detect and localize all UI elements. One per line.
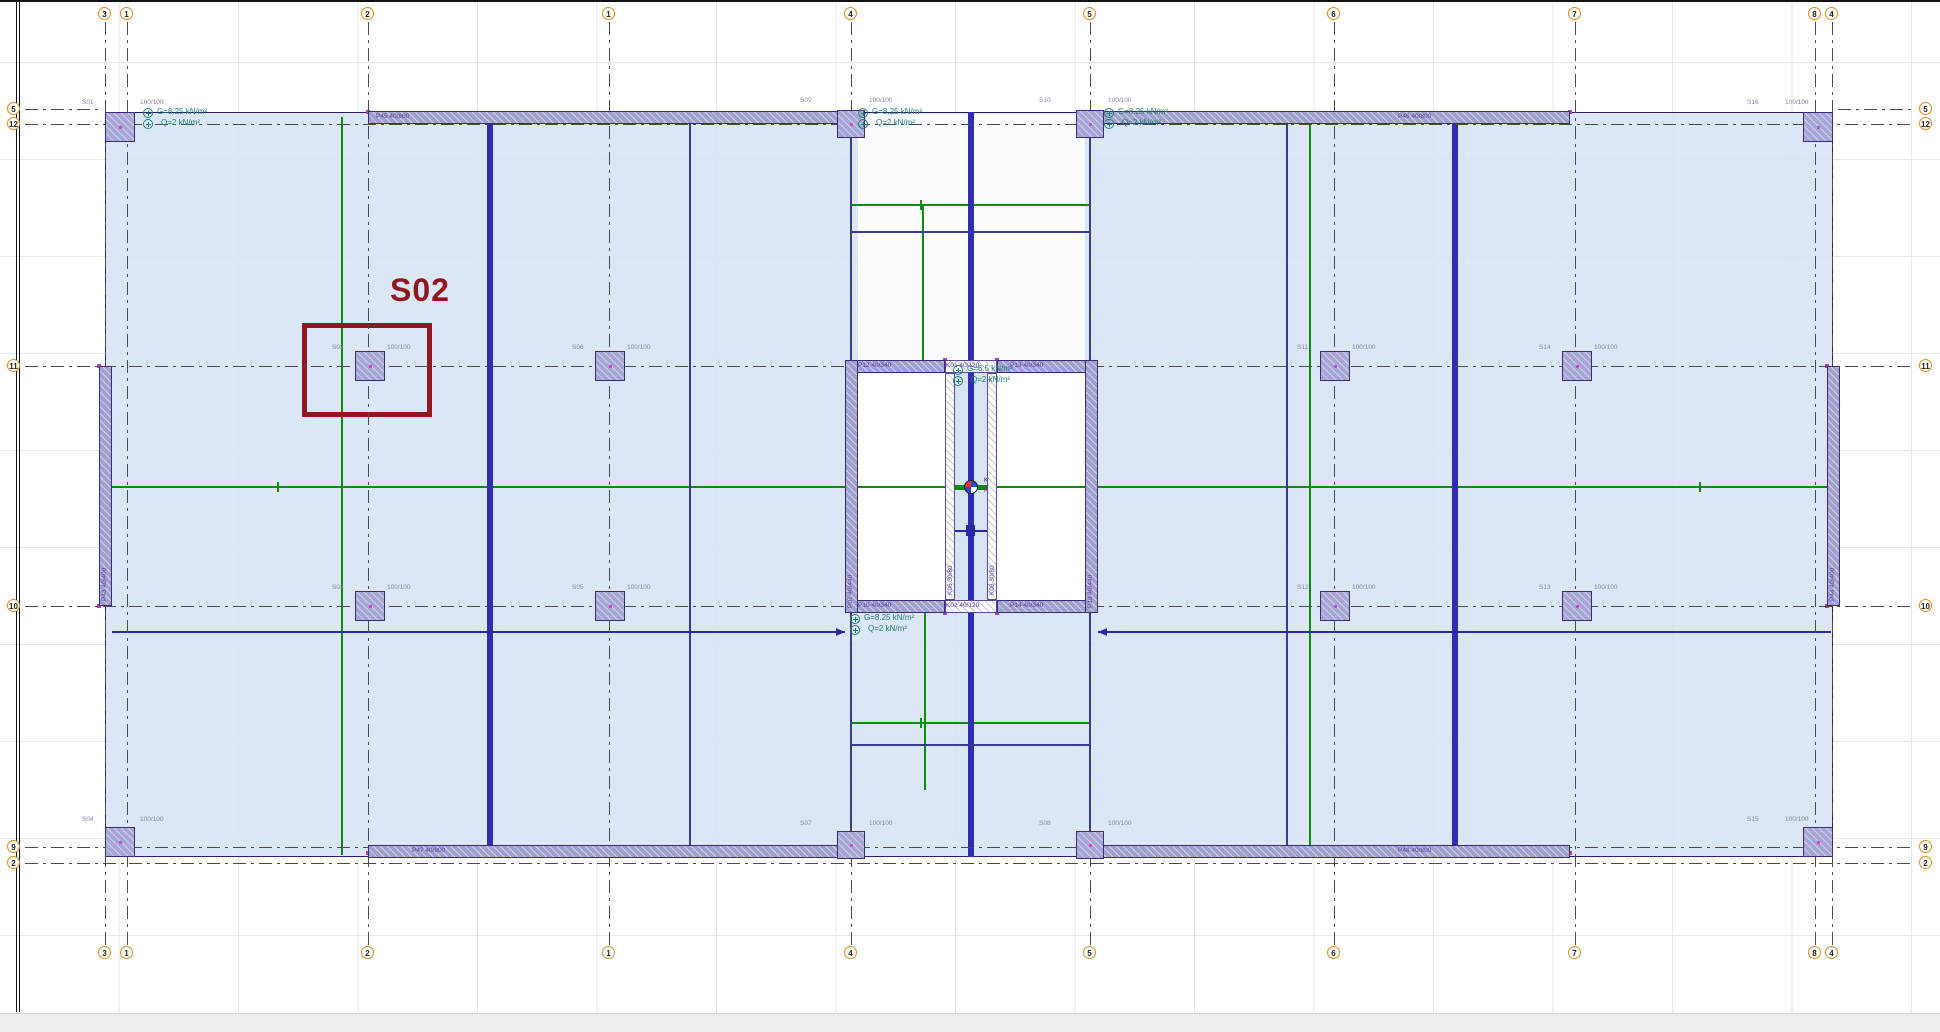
grid-axis-bubble-left[interactable]: 9 xyxy=(7,840,20,853)
column-s03[interactable] xyxy=(355,591,385,621)
column-s14[interactable] xyxy=(1562,351,1592,381)
dead-load-value: G=6.5 kN/m² xyxy=(967,364,1013,374)
column-size-label: 100/100 xyxy=(1108,97,1132,104)
green-tick-2 xyxy=(1699,482,1701,492)
column-name-label: S02 xyxy=(332,344,344,351)
column-s06[interactable] xyxy=(595,351,625,381)
column-s11[interactable] xyxy=(1320,351,1350,381)
green-strip-line-v5 xyxy=(924,613,926,790)
grid-axis-bubble-top[interactable]: 1 xyxy=(602,7,615,20)
grid-axis-v-line xyxy=(1575,22,1576,945)
grid-axis-bubble-bottom[interactable]: 4 xyxy=(1825,946,1838,959)
dead-load-value: G=8.25 kN/m² xyxy=(864,613,914,623)
column-size-label: 100/100 xyxy=(869,820,893,827)
live-load-value: Q=2 kN/m² xyxy=(1122,118,1161,128)
column-name-label: S06 xyxy=(572,344,584,351)
grid-axis-v-line xyxy=(1334,22,1335,945)
live-load-value: Q=2 kN/m² xyxy=(876,118,915,128)
column-s08[interactable] xyxy=(1076,831,1104,859)
column-s02[interactable] xyxy=(355,351,385,381)
column-size-label: 100/100 xyxy=(1352,584,1376,591)
green-tick-1 xyxy=(277,482,279,492)
column-size-label: 100/100 xyxy=(1108,820,1132,827)
load-symbol-icon xyxy=(1104,108,1114,118)
horizontal-scrollbar-track[interactable] xyxy=(0,1013,1940,1032)
column-size-label: 100/100 xyxy=(140,816,164,823)
slab-load-annotation: G=6.5 kN/m²Q=2 kN/m² xyxy=(953,364,1063,386)
column-size-label: 100/100 xyxy=(1352,344,1376,351)
dimension-arrow-right xyxy=(836,628,845,636)
slab-load-annotation: G=8.25 kN/m²Q=2 kN/m² xyxy=(858,107,968,129)
column-s13[interactable] xyxy=(1562,591,1592,621)
wall-label: P14 40/340 xyxy=(1010,602,1043,609)
grid-axis-bubble-bottom[interactable]: 1 xyxy=(602,946,615,959)
grid-axis-h-line xyxy=(25,847,1912,848)
column-s15[interactable] xyxy=(1803,827,1833,857)
beam-thin-1[interactable] xyxy=(689,112,691,857)
grid-axis-bubble-right[interactable]: 9 xyxy=(1919,840,1932,853)
grid-axis-bubble-right[interactable]: 12 xyxy=(1919,117,1932,130)
load-symbol-icon xyxy=(143,119,153,129)
grid-axis-bubble-right[interactable]: 2 xyxy=(1919,856,1932,869)
grid-axis-bubble-left[interactable]: 11 xyxy=(7,359,20,372)
grid-axis-v-line xyxy=(609,22,610,945)
column-s01[interactable] xyxy=(105,112,135,142)
slab-load-annotation: G=8.25 kN/m²Q=2 kN/m² xyxy=(1104,107,1214,129)
grid-axis-bubble-bottom[interactable]: 4 xyxy=(844,946,857,959)
wall-label: P10 40/340 xyxy=(858,602,891,609)
wall-label: P46 40/800 xyxy=(1398,113,1431,120)
top-rule xyxy=(0,0,1940,2)
wall-label: P12 40/340 xyxy=(858,362,891,369)
grid-axis-bubble-top[interactable]: 2 xyxy=(361,7,374,20)
column-s07[interactable] xyxy=(837,831,865,859)
column-name-label: S12 xyxy=(1297,584,1309,591)
grid-axis-h-line xyxy=(25,109,103,110)
column-name-label: S15 xyxy=(1747,816,1759,823)
column-name-label: S03 xyxy=(332,584,344,591)
grid-axis-bubble-right[interactable]: 10 xyxy=(1919,599,1932,612)
column-size-label: 100/100 xyxy=(869,97,893,104)
load-symbol-icon xyxy=(850,614,860,624)
wall-label: P45 40/800 xyxy=(376,113,409,120)
grid-axis-bubble-bottom[interactable]: 3 xyxy=(98,946,111,959)
load-symbol-icon xyxy=(858,119,868,129)
column-name-label: S09 xyxy=(800,97,812,104)
grid-axis-bubble-bottom[interactable]: 8 xyxy=(1808,946,1821,959)
beam-thick-right[interactable] xyxy=(1452,112,1458,857)
column-size-label: 100/100 xyxy=(1594,344,1618,351)
slab-load-annotation: G=8.25 kN/m²Q=2 kN/m² xyxy=(143,107,253,129)
column-s12[interactable] xyxy=(1320,591,1350,621)
wall-label: P44 40/400 xyxy=(1829,568,1836,601)
live-load-value: Q=2 kN/m² xyxy=(161,118,200,128)
load-symbol-icon xyxy=(953,376,963,386)
slab-load-annotation: G=8.25 kN/m²Q=2 kN/m² xyxy=(850,613,960,635)
column-s04[interactable] xyxy=(105,827,135,857)
wall-label: P07 40/440 xyxy=(847,575,854,608)
wall-label: K06 30/80 xyxy=(947,565,954,595)
dimension-line-right xyxy=(1098,631,1831,633)
s02-highlight-label: S02 xyxy=(390,272,450,309)
column-size-label: 100/100 xyxy=(627,344,651,351)
column-size-label: 100/100 xyxy=(140,99,164,106)
cad-floor-plan-viewport[interactable]: S02 KM KR 331122114455667788445512121111… xyxy=(0,0,1940,1032)
column-size-label: 100/100 xyxy=(627,584,651,591)
dead-load-value: G=8.25 kN/m² xyxy=(157,107,207,117)
column-size-label: 100/100 xyxy=(1785,816,1809,823)
dimension-arrow-left xyxy=(1098,628,1107,636)
column-name-label: S07 xyxy=(800,820,812,827)
grid-axis-bubble-left[interactable]: 12 xyxy=(7,117,20,130)
wall-label: P43 40/400 xyxy=(101,568,108,601)
column-name-label: S10 xyxy=(1039,97,1051,104)
green-tick-3 xyxy=(920,200,922,210)
green-strip-line-v3 xyxy=(922,205,924,360)
column-name-label: S01 xyxy=(82,99,94,106)
wall-label: P47 40/800 xyxy=(412,847,445,854)
grid-axis-bubble-top[interactable]: 4 xyxy=(1825,7,1838,20)
grid-axis-bubble-right[interactable]: 11 xyxy=(1919,359,1932,372)
column-name-label: S08 xyxy=(1039,820,1051,827)
grid-axis-bubble-bottom[interactable]: 5 xyxy=(1083,946,1096,959)
column-s10[interactable] xyxy=(1076,110,1104,138)
live-load-value: Q=2 kN/m² xyxy=(971,375,1010,385)
column-size-label: 100/100 xyxy=(387,584,411,591)
column-name-label: S05 xyxy=(572,584,584,591)
shear-wall[interactable] xyxy=(368,111,851,124)
grid-axis-bubble-top[interactable]: 8 xyxy=(1808,7,1821,20)
grid-axis-h-line xyxy=(25,863,1912,864)
grid-axis-bubble-top[interactable]: 7 xyxy=(1568,7,1581,20)
load-symbol-icon xyxy=(858,108,868,118)
dimension-line-left xyxy=(112,631,845,633)
column-name-label: S04 xyxy=(82,816,94,823)
wall-label: P18 40/440 xyxy=(1087,575,1094,608)
beam-thin-h-bottom[interactable] xyxy=(852,744,1089,746)
load-symbol-icon xyxy=(143,108,153,118)
grid-axis-bubble-left[interactable]: 5 xyxy=(7,102,20,115)
mass-center-marker xyxy=(964,480,978,494)
column-size-label: 100/100 xyxy=(1785,99,1809,106)
wall-label: K08 30/80 xyxy=(989,565,996,595)
load-symbol-icon xyxy=(850,625,860,635)
strip-dimension-block xyxy=(966,525,975,536)
grid-axis-bubble-bottom[interactable]: 7 xyxy=(1568,946,1581,959)
column-name-label: S13 xyxy=(1539,584,1551,591)
grid-axis-bubble-right[interactable]: 5 xyxy=(1919,102,1932,115)
grid-axis-bubble-top[interactable]: 5 xyxy=(1083,7,1096,20)
grid-axis-bubble-left[interactable]: 10 xyxy=(7,599,20,612)
grid-axis-v-line xyxy=(127,22,128,945)
grid-axis-v-line xyxy=(1815,22,1816,945)
grid-axis-h-line xyxy=(25,124,1912,125)
column-name-label: S14 xyxy=(1539,344,1551,351)
grid-axis-bubble-bottom[interactable]: 6 xyxy=(1327,946,1340,959)
grid-axis-bubble-left[interactable]: 2 xyxy=(7,856,20,869)
load-symbol-icon xyxy=(1104,119,1114,129)
dead-load-value: G=8.25 kN/m² xyxy=(872,107,922,117)
grid-axis-bubble-bottom[interactable]: 1 xyxy=(120,946,133,959)
grid-axis-bubble-bottom[interactable]: 2 xyxy=(361,946,374,959)
column-size-label: 100/100 xyxy=(387,344,411,351)
column-name-label: S16 xyxy=(1747,99,1759,106)
beam-thick-left[interactable] xyxy=(487,112,493,857)
grid-axis-v-line xyxy=(368,22,369,945)
grid-axis-bubble-top[interactable]: 1 xyxy=(120,7,133,20)
grid-axis-bubble-top[interactable]: 6 xyxy=(1327,7,1340,20)
wall-label: K02 40/120 xyxy=(946,602,979,609)
grid-axis-bubble-top[interactable]: 3 xyxy=(98,7,111,20)
column-name-label: S11 xyxy=(1297,344,1308,351)
dead-load-value: G=8.25 kN/m² xyxy=(1118,107,1168,117)
live-load-value: Q=2 kN/m² xyxy=(868,624,907,634)
beam-thin-4[interactable] xyxy=(1286,112,1288,857)
load-symbol-icon xyxy=(953,365,963,375)
column-size-label: 100/100 xyxy=(1594,584,1618,591)
green-tick-4 xyxy=(920,718,922,728)
shear-wall[interactable] xyxy=(1090,845,1570,858)
grid-axis-bubble-top[interactable]: 4 xyxy=(844,7,857,20)
column-s05[interactable] xyxy=(595,591,625,621)
grid-axis-h-line xyxy=(1838,109,1912,110)
column-s16[interactable] xyxy=(1803,112,1833,142)
wall-label: P48 40/800 xyxy=(1398,847,1431,854)
beam-thin-h-top[interactable] xyxy=(852,231,1089,233)
